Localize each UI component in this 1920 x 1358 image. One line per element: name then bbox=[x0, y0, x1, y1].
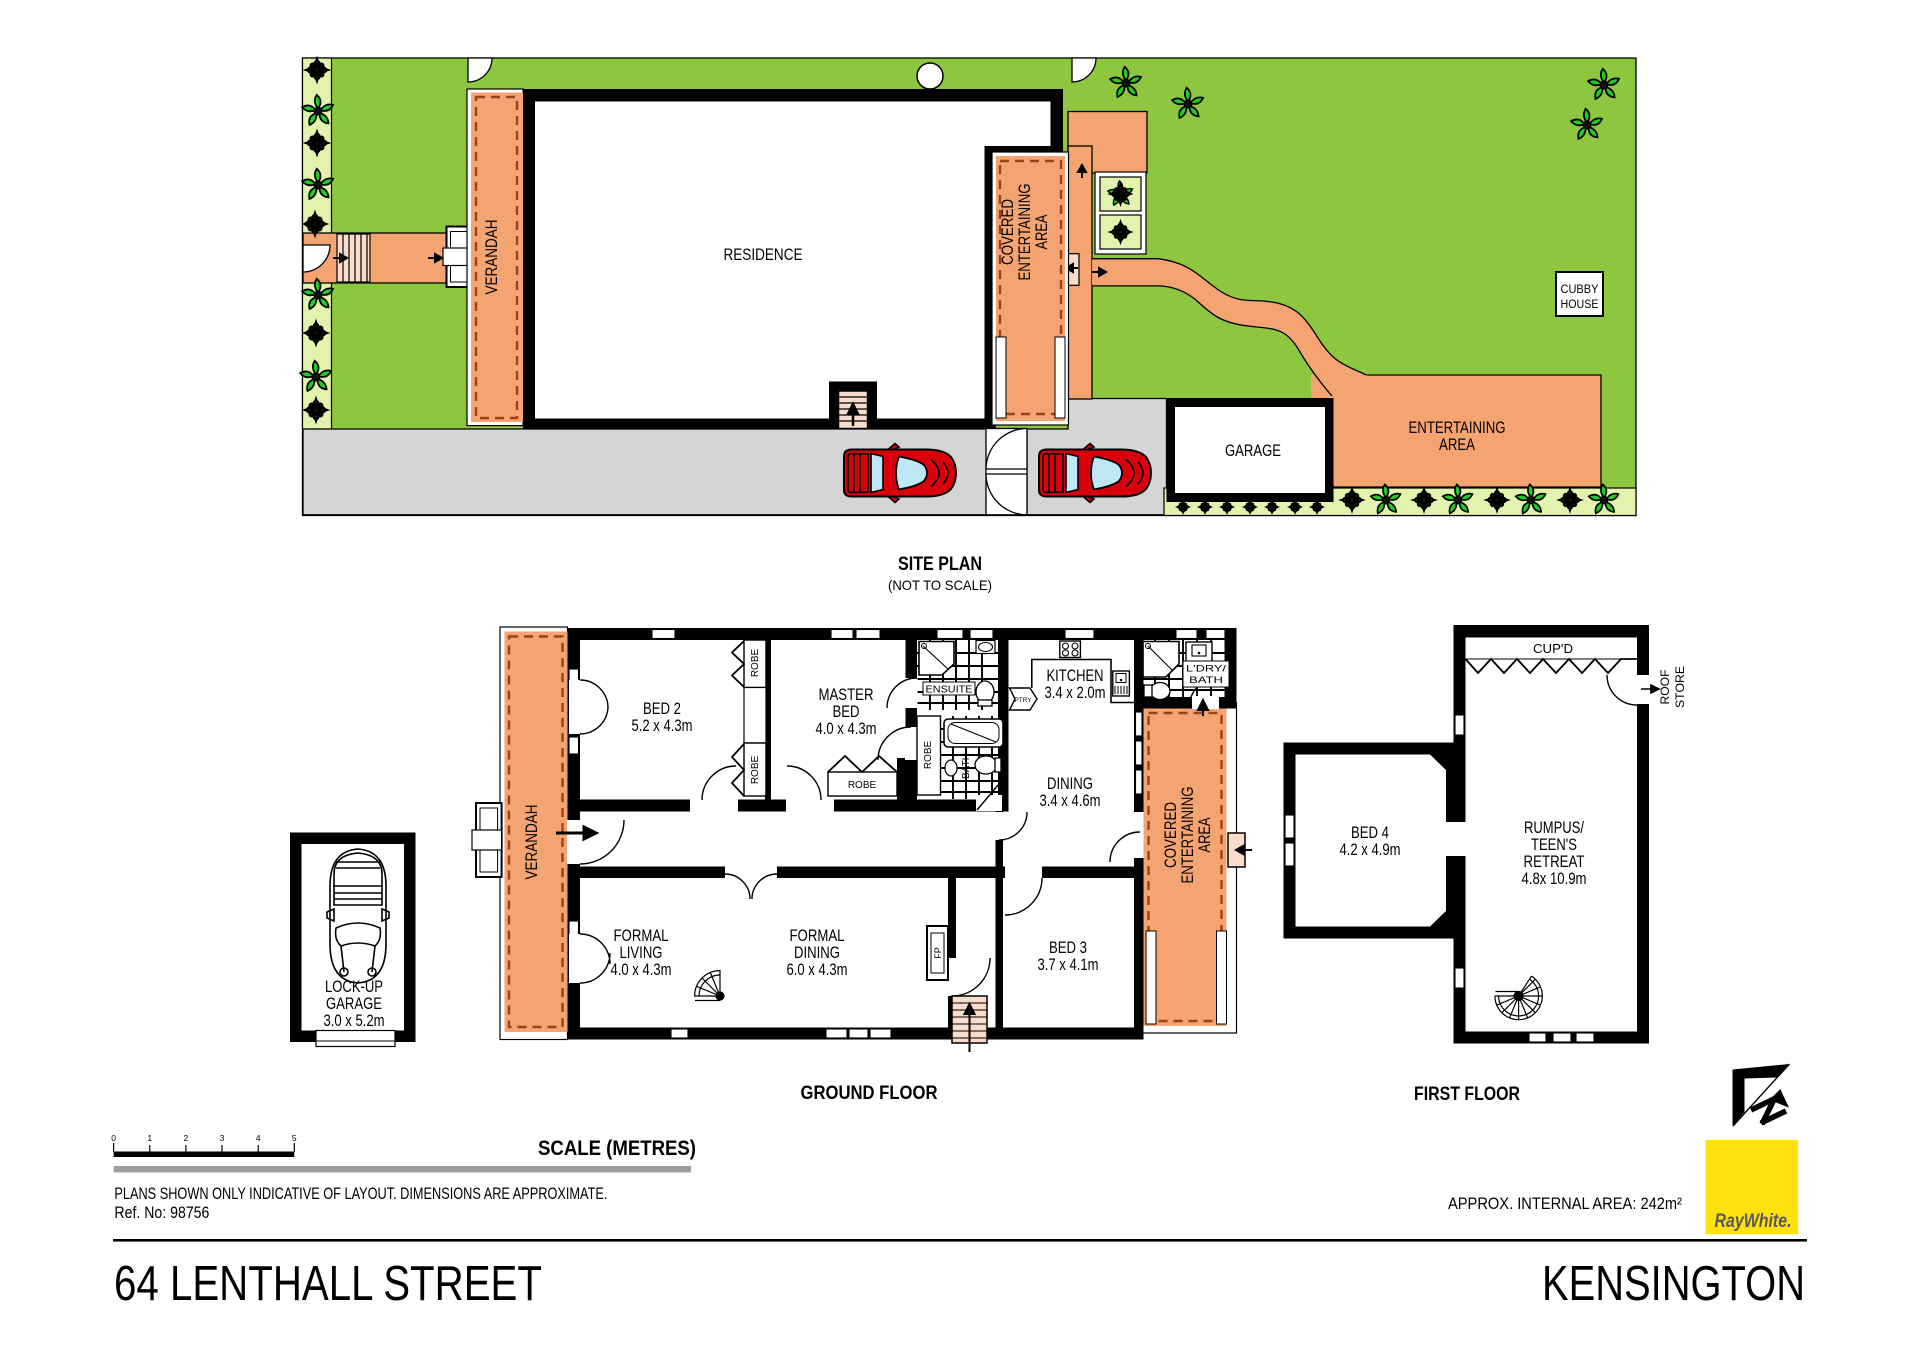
svg-text:PTRY: PTRY bbox=[1014, 697, 1032, 704]
svg-text:4.2 x 4.9m: 4.2 x 4.9m bbox=[1340, 840, 1401, 859]
svg-text:3.7 x 4.1m: 3.7 x 4.1m bbox=[1038, 955, 1099, 974]
svg-text:BATH: BATH bbox=[1189, 675, 1223, 686]
svg-text:ROBE: ROBE bbox=[750, 756, 761, 785]
svg-text:AREA: AREA bbox=[1195, 817, 1214, 852]
svg-text:L'DRY/: L'DRY/ bbox=[1186, 664, 1226, 675]
svg-text:APPROX. INTERNAL AREA: 242m²: APPROX. INTERNAL AREA: 242m² bbox=[1448, 1194, 1682, 1213]
svg-text:1: 1 bbox=[147, 1133, 152, 1143]
svg-text:VERANDAH: VERANDAH bbox=[522, 805, 541, 880]
svg-text:3.4 x 2.0m: 3.4 x 2.0m bbox=[1045, 683, 1106, 702]
svg-text:AREA: AREA bbox=[1439, 435, 1476, 454]
svg-text:0: 0 bbox=[111, 1133, 116, 1143]
svg-text:ENSUITE: ENSUITE bbox=[926, 685, 973, 696]
svg-text:CUP'D: CUP'D bbox=[1533, 641, 1573, 656]
svg-text:HOUSE: HOUSE bbox=[1561, 299, 1599, 311]
svg-text:VERANDAH: VERANDAH bbox=[482, 220, 501, 295]
svg-text:Ref. No: 98756: Ref. No: 98756 bbox=[114, 1203, 209, 1222]
svg-text:3: 3 bbox=[220, 1133, 225, 1143]
svg-text:5: 5 bbox=[292, 1133, 297, 1143]
svg-text:4: 4 bbox=[256, 1133, 261, 1143]
svg-text:GROUND FLOOR: GROUND FLOOR bbox=[801, 1083, 938, 1104]
svg-text:FP: FP bbox=[933, 947, 943, 959]
svg-text:CUBBY: CUBBY bbox=[1561, 284, 1599, 296]
svg-text:4.8x 10.9m: 4.8x 10.9m bbox=[1522, 869, 1587, 888]
svg-text:SCALE (METRES): SCALE (METRES) bbox=[538, 1137, 696, 1160]
svg-text:ROBE: ROBE bbox=[848, 780, 877, 791]
svg-text:RayWhite.: RayWhite. bbox=[1715, 1211, 1792, 1232]
svg-text:BATH: BATH bbox=[961, 753, 972, 779]
svg-text:PLANS SHOWN ONLY INDICATIVE OF: PLANS SHOWN ONLY INDICATIVE OF LAYOUT. D… bbox=[114, 1184, 607, 1203]
svg-text:5.2 x 4.3m: 5.2 x 4.3m bbox=[632, 716, 693, 735]
svg-text:4.0 x 4.3m: 4.0 x 4.3m bbox=[611, 960, 672, 979]
svg-text:6.0 x 4.3m: 6.0 x 4.3m bbox=[787, 960, 848, 979]
svg-text:FIRST FLOOR: FIRST FLOOR bbox=[1414, 1084, 1520, 1105]
svg-text:3.0 x 5.2m: 3.0 x 5.2m bbox=[324, 1011, 385, 1030]
svg-text:ROOF: ROOF bbox=[1658, 670, 1672, 705]
svg-text:RESIDENCE: RESIDENCE bbox=[724, 245, 803, 264]
svg-text:SITE PLAN: SITE PLAN bbox=[898, 554, 982, 575]
svg-text:64 LENTHALL STREET: 64 LENTHALL STREET bbox=[114, 1257, 542, 1311]
svg-text:ROBE: ROBE bbox=[750, 649, 761, 678]
svg-text:GARAGE: GARAGE bbox=[1225, 441, 1281, 460]
svg-text:(NOT TO SCALE): (NOT TO SCALE) bbox=[888, 577, 992, 593]
svg-text:STORE: STORE bbox=[1673, 666, 1687, 708]
svg-text:ROBE: ROBE bbox=[923, 741, 934, 770]
svg-text:KENSINGTON: KENSINGTON bbox=[1542, 1257, 1805, 1311]
svg-text:4.0 x 4.3m: 4.0 x 4.3m bbox=[816, 719, 877, 738]
svg-text:2: 2 bbox=[184, 1133, 189, 1143]
svg-text:AREA: AREA bbox=[1032, 214, 1051, 249]
svg-text:3.4 x 4.6m: 3.4 x 4.6m bbox=[1040, 791, 1101, 810]
